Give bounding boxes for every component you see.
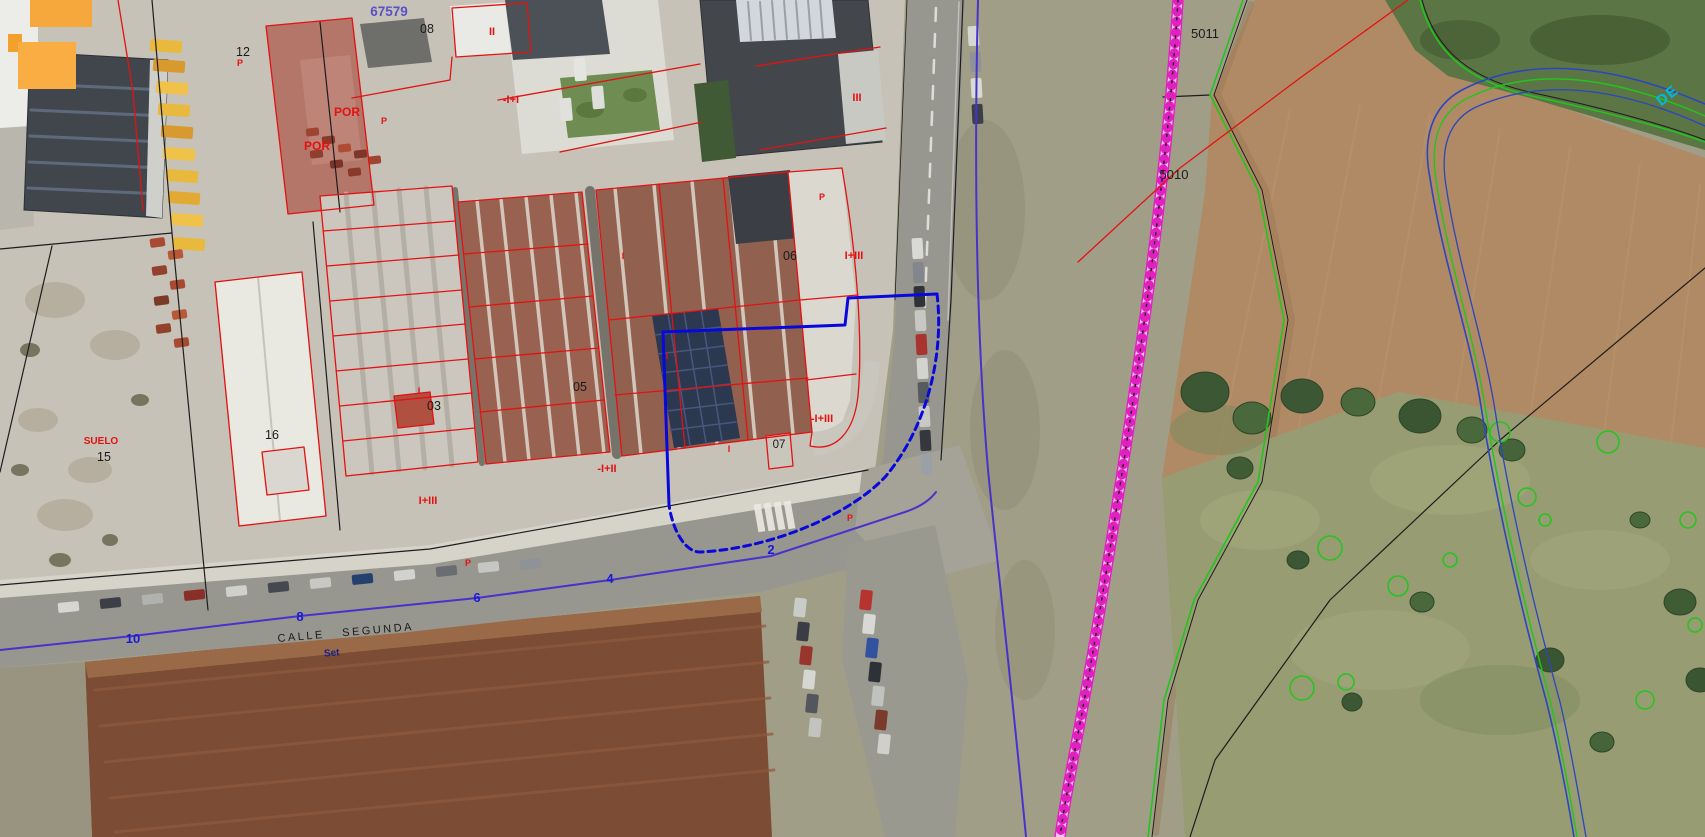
vehicle [914, 310, 926, 332]
tree [1664, 589, 1696, 615]
tree [1399, 399, 1441, 433]
tree [1410, 592, 1434, 612]
vehicle [573, 58, 587, 82]
floors-label-i3: I [622, 251, 625, 261]
tree [1536, 648, 1564, 672]
vehicle [971, 104, 983, 125]
tree [1227, 457, 1253, 479]
tree [1341, 388, 1375, 416]
vehicle [591, 86, 605, 110]
chainage-label-8: 8 [296, 609, 303, 624]
parcel-label-06: 06 [783, 249, 797, 263]
vehicle [799, 645, 813, 665]
vehicle [916, 358, 928, 380]
vehicle [913, 286, 925, 308]
vehicle [793, 597, 807, 617]
patio-label-p5: P [465, 558, 471, 568]
vehicle [868, 661, 882, 682]
floors-label-minus-i-plus-i: -I+I [503, 94, 519, 106]
vehicle [171, 213, 204, 227]
parcel-label-5011: 5011 [1191, 26, 1219, 41]
vehicle [559, 98, 573, 122]
tree [1342, 693, 1362, 711]
patio-label-p3: P [819, 192, 825, 202]
tree [1287, 551, 1309, 569]
chainage-label-10: 10 [126, 631, 140, 646]
vehicle [911, 238, 923, 260]
tree [1233, 402, 1271, 434]
patio-label-p2: P [381, 116, 387, 126]
vehicle [805, 693, 819, 713]
vehicle [919, 430, 931, 452]
vehicle [969, 52, 981, 73]
road-annotation-label: Set [324, 647, 341, 659]
chainage-label-4: 4 [606, 571, 614, 586]
map-viewport[interactable]: 08 12 06 05 03 07 15 16 5011 5010 CALLE … [0, 0, 1705, 837]
parcel-label-12: 12 [236, 45, 250, 59]
vehicle [796, 621, 810, 641]
patio-label-p4: P [847, 513, 853, 523]
vehicle [161, 125, 194, 139]
parcel-label-08: 08 [420, 22, 434, 36]
parcel-label-5010: 5010 [1160, 167, 1189, 182]
tree [1590, 732, 1614, 752]
tree [1181, 372, 1229, 412]
chainage-label-2: 2 [767, 542, 774, 557]
vehicle [912, 262, 924, 284]
vehicle [166, 169, 199, 183]
parcel-label-15: 15 [97, 450, 111, 464]
tree [1630, 512, 1650, 528]
parcel-label-16: 16 [265, 428, 279, 442]
vehicle [874, 709, 888, 730]
vehicle [348, 167, 362, 176]
vehicle [306, 127, 320, 136]
floors-label-i2: I [728, 444, 731, 454]
tree [1457, 417, 1487, 443]
parcel-label-07: 07 [773, 439, 786, 451]
vehicle [859, 589, 873, 610]
parcel-label-03: 03 [427, 399, 441, 413]
parcel-label-05: 05 [573, 380, 587, 394]
vehicle [877, 733, 891, 754]
vehicle [330, 159, 344, 168]
vehicle [920, 454, 932, 476]
floors-label-i1: I [418, 386, 421, 396]
floors-label-i-plus-iii-lower: I+III [419, 495, 438, 507]
vehicle [150, 39, 183, 53]
vehicle [168, 191, 201, 205]
floors-label-i-plus-iii-upper: I+III [845, 250, 864, 262]
patio-label-p1: P [237, 58, 243, 68]
floors-label-minus-i-plus-ii: -I+II [597, 463, 616, 475]
por-label-lower: POR [304, 139, 330, 153]
vehicle [862, 613, 876, 634]
vehicle [915, 334, 927, 356]
tree [1281, 379, 1323, 413]
vehicle [163, 147, 196, 161]
aerial-imagery-canvas: 08 12 06 05 03 07 15 16 5011 5010 CALLE … [0, 0, 1705, 837]
floors-label-iii: III [852, 92, 861, 104]
vehicle [802, 669, 816, 689]
chainage-label-6: 6 [473, 590, 480, 605]
floors-label-i4: I [666, 351, 669, 361]
vehicle [865, 637, 879, 658]
suelo-label: SUELO [84, 436, 119, 447]
floors-label-ii-box: II [489, 26, 495, 38]
vehicle [158, 103, 191, 117]
vehicle [808, 717, 822, 737]
floors-label-minus-i-plus-iii: -I+III [811, 413, 833, 425]
por-label-upper: POR [334, 105, 360, 119]
vehicle [338, 143, 352, 152]
vehicle [173, 237, 206, 251]
block-number-label: 67579 [370, 4, 408, 19]
vehicle [871, 685, 885, 706]
vehicle [354, 149, 368, 158]
